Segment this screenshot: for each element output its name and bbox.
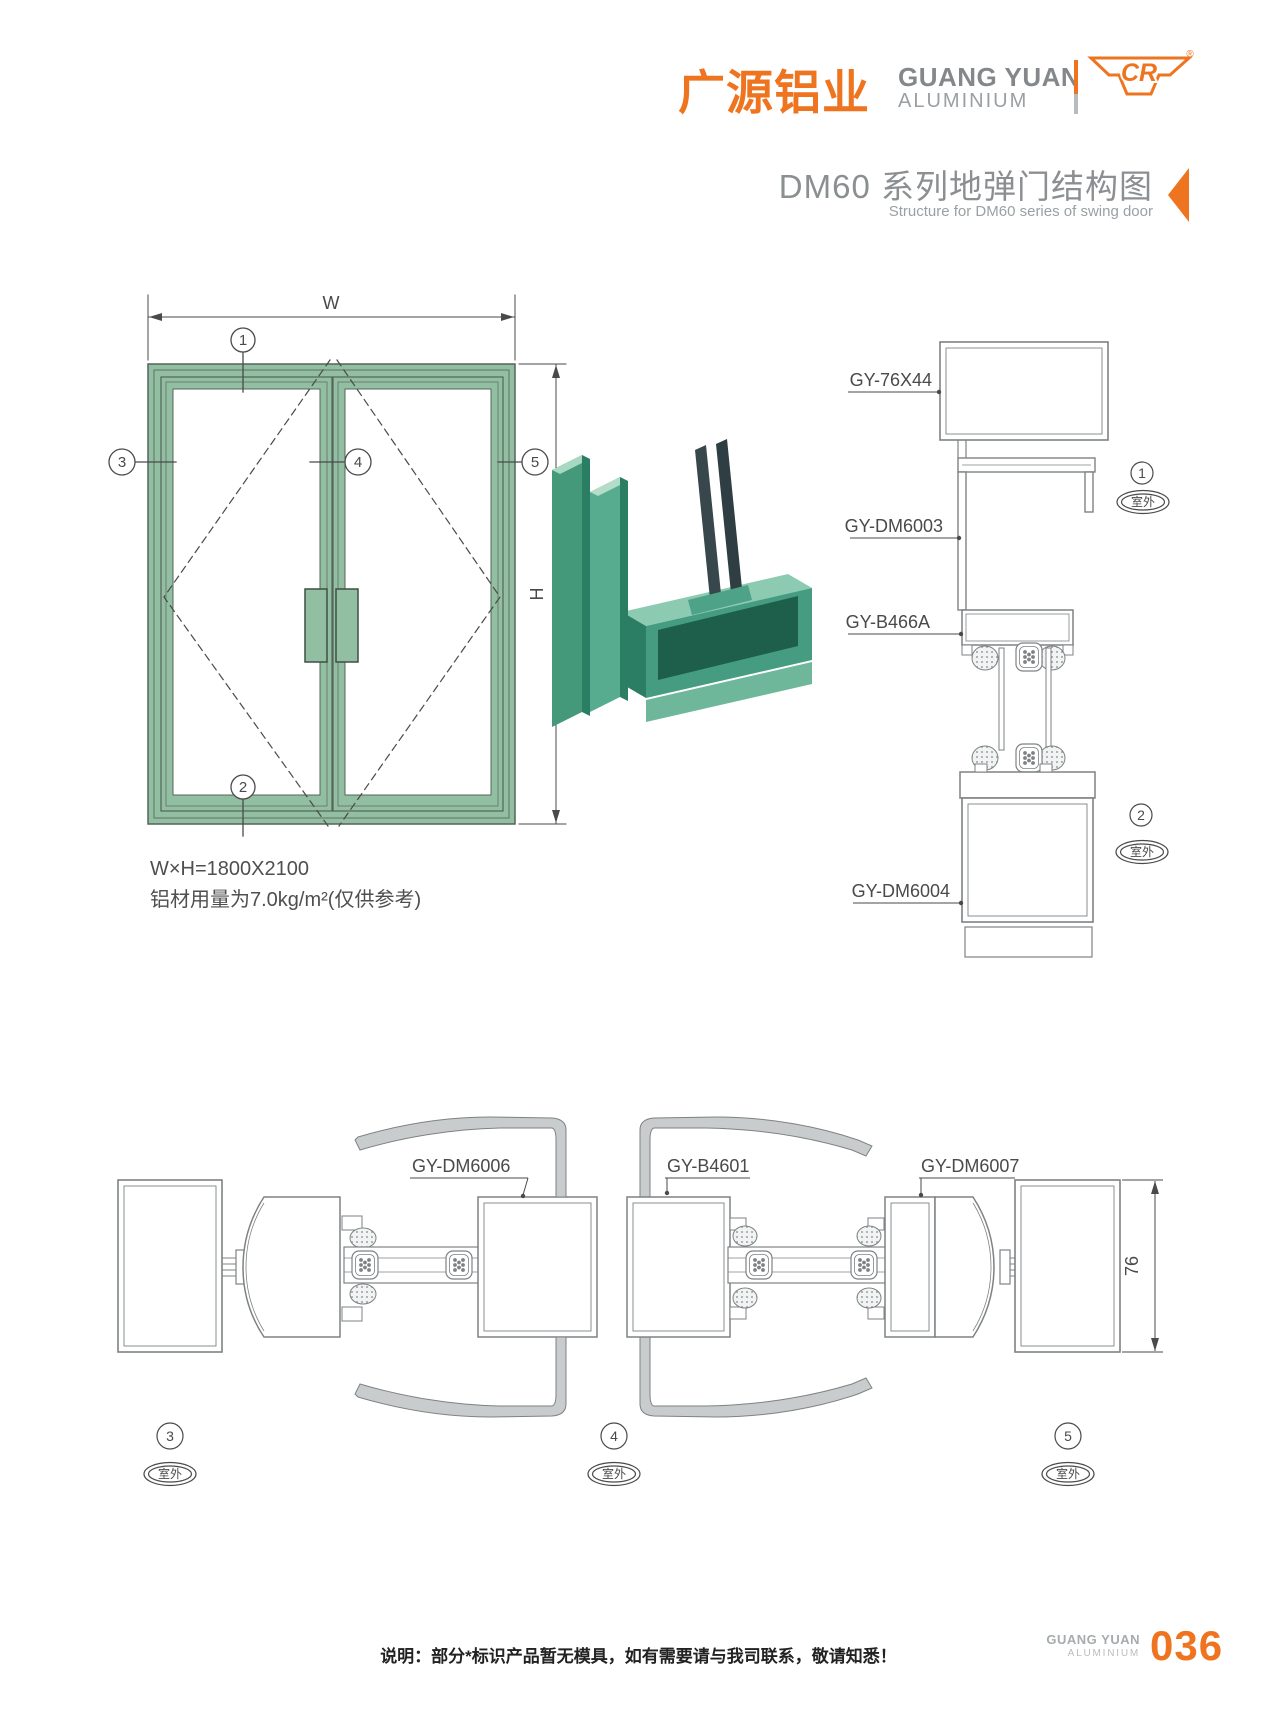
spec-size: W×H=1800X2100	[150, 854, 421, 885]
glass-pane-back	[695, 445, 722, 609]
door-frame	[148, 364, 515, 824]
label-gy-76x44: GY-76X44	[850, 370, 932, 390]
dim-width-label: W	[323, 293, 340, 313]
label-gy-dm6003: GY-DM6003	[845, 516, 943, 536]
marker-h4: 4	[610, 1428, 618, 1444]
dim-depth-label: 76	[1122, 1256, 1142, 1276]
footer-brand-line2: ALUMINIUM	[1046, 1648, 1140, 1659]
iso-3d-render	[552, 439, 812, 727]
page-number: 036	[1150, 1622, 1223, 1670]
marker-v2: 2	[1137, 807, 1145, 823]
door-elevation-drawing: W H	[109, 293, 566, 836]
horizontal-section-drawing: 76 GY-DM6006 GY-B4601 GY-DM6007 3 室外 4 室…	[118, 1117, 1163, 1486]
elevation-spec: W×H=1800X2100 铝材用量为7.0kg/m²(仅供参考)	[150, 854, 421, 916]
outdoor-badge: 室外	[1131, 494, 1155, 509]
marker-h3: 3	[166, 1428, 174, 1444]
label-gy-dm6004: GY-DM6004	[852, 881, 950, 901]
label-gy-dm6006: GY-DM6006	[412, 1156, 510, 1176]
vertical-section-drawing: GY-76X44 GY-DM6003 GY-B466A GY-DM6004 1 …	[845, 342, 1169, 957]
label-gy-dm6007: GY-DM6007	[921, 1156, 1019, 1176]
outdoor-badge: 室外	[602, 1466, 626, 1481]
outdoor-badge: 室外	[1130, 844, 1154, 859]
dim-height-label: H	[527, 588, 547, 601]
footer-brand: GUANG YUAN ALUMINIUM	[1046, 1632, 1140, 1659]
marker-5: 5	[531, 454, 539, 471]
outdoor-badge: 室外	[1056, 1466, 1080, 1481]
door-handle-right	[336, 589, 358, 662]
label-gy-b4601: GY-B4601	[667, 1156, 749, 1176]
marker-1: 1	[239, 332, 247, 349]
marker-2: 2	[239, 779, 247, 796]
outdoor-badge: 室外	[158, 1466, 182, 1481]
marker-3: 3	[118, 454, 126, 471]
marker-4: 4	[354, 454, 362, 471]
glass-pane-front	[716, 439, 743, 603]
marker-v1: 1	[1138, 465, 1146, 481]
footer-brand-line1: GUANG YUAN	[1046, 1632, 1140, 1647]
spec-usage: 铝材用量为7.0kg/m²(仅供参考)	[150, 885, 421, 916]
marker-h5: 5	[1064, 1428, 1072, 1444]
door-handle-left	[305, 589, 327, 662]
label-gy-b466a: GY-B466A	[846, 612, 930, 632]
